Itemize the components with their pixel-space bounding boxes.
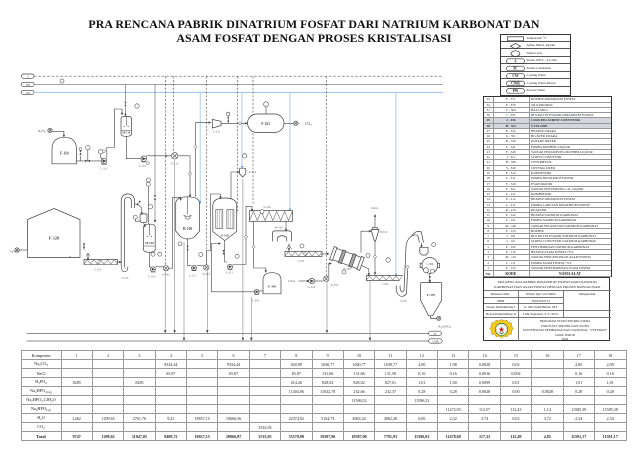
svg-text:F-340: F-340 (268, 285, 276, 289)
svg-text:PW: PW (512, 89, 518, 93)
svg-text:F-370: F-370 (427, 293, 436, 297)
svg-text:H-330: H-330 (275, 226, 283, 230)
svg-text:H3PO4: H3PO4 (38, 129, 47, 134)
svg-text:CWR: CWR (432, 340, 438, 343)
svg-text:L-141: L-141 (148, 275, 156, 279)
svg-text:L-341: L-341 (252, 298, 260, 302)
svg-text:B-330: B-330 (343, 267, 351, 271)
svg-text:PW: PW (26, 84, 30, 87)
svg-text:S-320: S-320 (263, 205, 271, 209)
svg-text:M-110: M-110 (122, 130, 130, 134)
svg-text:L-211: L-211 (189, 274, 197, 278)
svg-text:M-140: M-140 (145, 241, 154, 245)
svg-text:E-312: E-312 (249, 170, 257, 174)
svg-text:CW: CW (26, 92, 31, 95)
svg-text:F-110: F-110 (60, 152, 69, 156)
svg-text:J-335: J-335 (400, 299, 407, 303)
svg-text:C-364: C-364 (426, 263, 433, 266)
svg-text:Na2HPO4: Na2HPO4 (438, 324, 452, 329)
svg-text:H-331: H-331 (380, 230, 388, 234)
svg-text:J-122: J-122 (122, 276, 129, 280)
svg-text:CO2: CO2 (305, 122, 312, 127)
svg-text:CWR: CWR (511, 81, 520, 85)
svg-text:SC: SC (513, 66, 518, 70)
svg-text:Udara: Udara (371, 206, 379, 210)
svg-text:R-210: R-210 (183, 227, 192, 231)
svg-text:CW: CW (512, 74, 519, 78)
svg-text:S: S (514, 59, 516, 63)
svg-text:E-212: E-212 (203, 272, 211, 276)
svg-text:L-311: L-311 (226, 271, 234, 275)
svg-text:E-142: E-142 (162, 272, 170, 276)
svg-text:V-310: V-310 (220, 234, 229, 238)
svg-text:Udara: Udara (288, 279, 296, 283)
svg-text:L-111: L-111 (100, 167, 108, 171)
svg-text:J-121: J-121 (94, 267, 101, 271)
svg-text:E-352: E-352 (331, 283, 339, 287)
svg-text:E-112: E-112 (171, 161, 179, 165)
svg-text:SC: SC (433, 333, 436, 336)
svg-text:J-311: J-311 (298, 259, 305, 263)
svg-text:L-113: L-113 (139, 164, 147, 168)
svg-text:J-334: J-334 (382, 282, 389, 286)
svg-text:C-211: C-211 (213, 129, 221, 133)
svg-text:F-221: F-221 (261, 122, 270, 126)
svg-text:F-120: F-120 (49, 236, 59, 241)
svg-text:G-351: G-351 (308, 285, 316, 289)
